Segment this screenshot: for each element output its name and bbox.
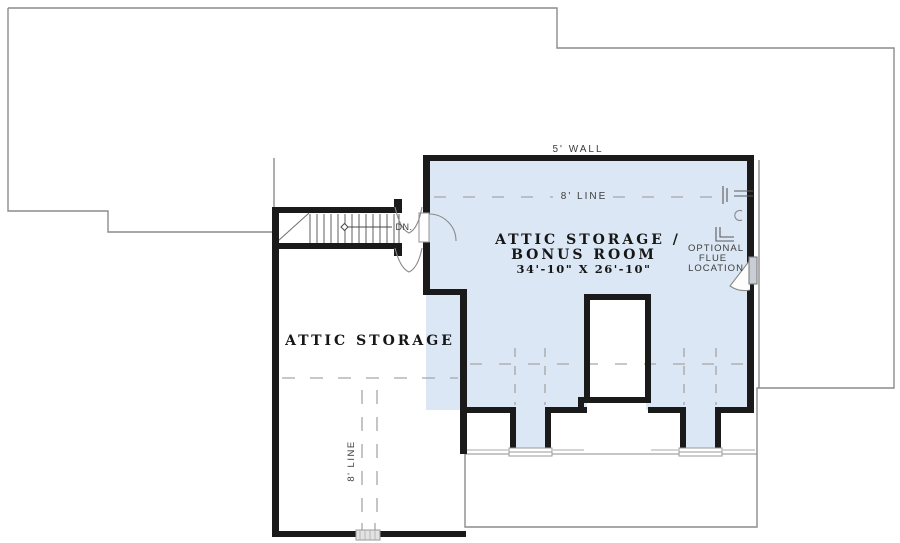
bonus-room-dimensions: 34'-10" X 26'-10"	[516, 262, 651, 276]
attic-storage-name: ATTIC STORAGE	[285, 334, 455, 348]
stairwell	[278, 213, 399, 243]
bonus-room-name-line2: BONUS ROOM	[511, 248, 657, 262]
flue-access-door-leaf	[749, 257, 757, 284]
dormer-windows	[356, 448, 722, 540]
wall-height-label: 5' WALL	[552, 145, 603, 155]
attic-window	[356, 523, 380, 540]
bonus-room-name-line1: ATTIC STORAGE /	[495, 233, 681, 247]
flue-note-line3: LOCATION	[688, 264, 744, 274]
floor-plan-drawing	[0, 0, 900, 543]
open-chase	[587, 299, 646, 413]
floor-plan-canvas: 5' WALL 8' LINE ATTIC STORAGE / BONUS RO…	[0, 0, 900, 543]
stair-treads	[310, 214, 399, 243]
stair-direction-label: DN.	[396, 222, 413, 232]
ceiling-line-label-left: 8' LINE	[347, 440, 357, 481]
door-leaf	[419, 213, 429, 242]
ceiling-line-label-room: 8' LINE	[561, 192, 607, 202]
stair-break-line	[278, 213, 309, 241]
